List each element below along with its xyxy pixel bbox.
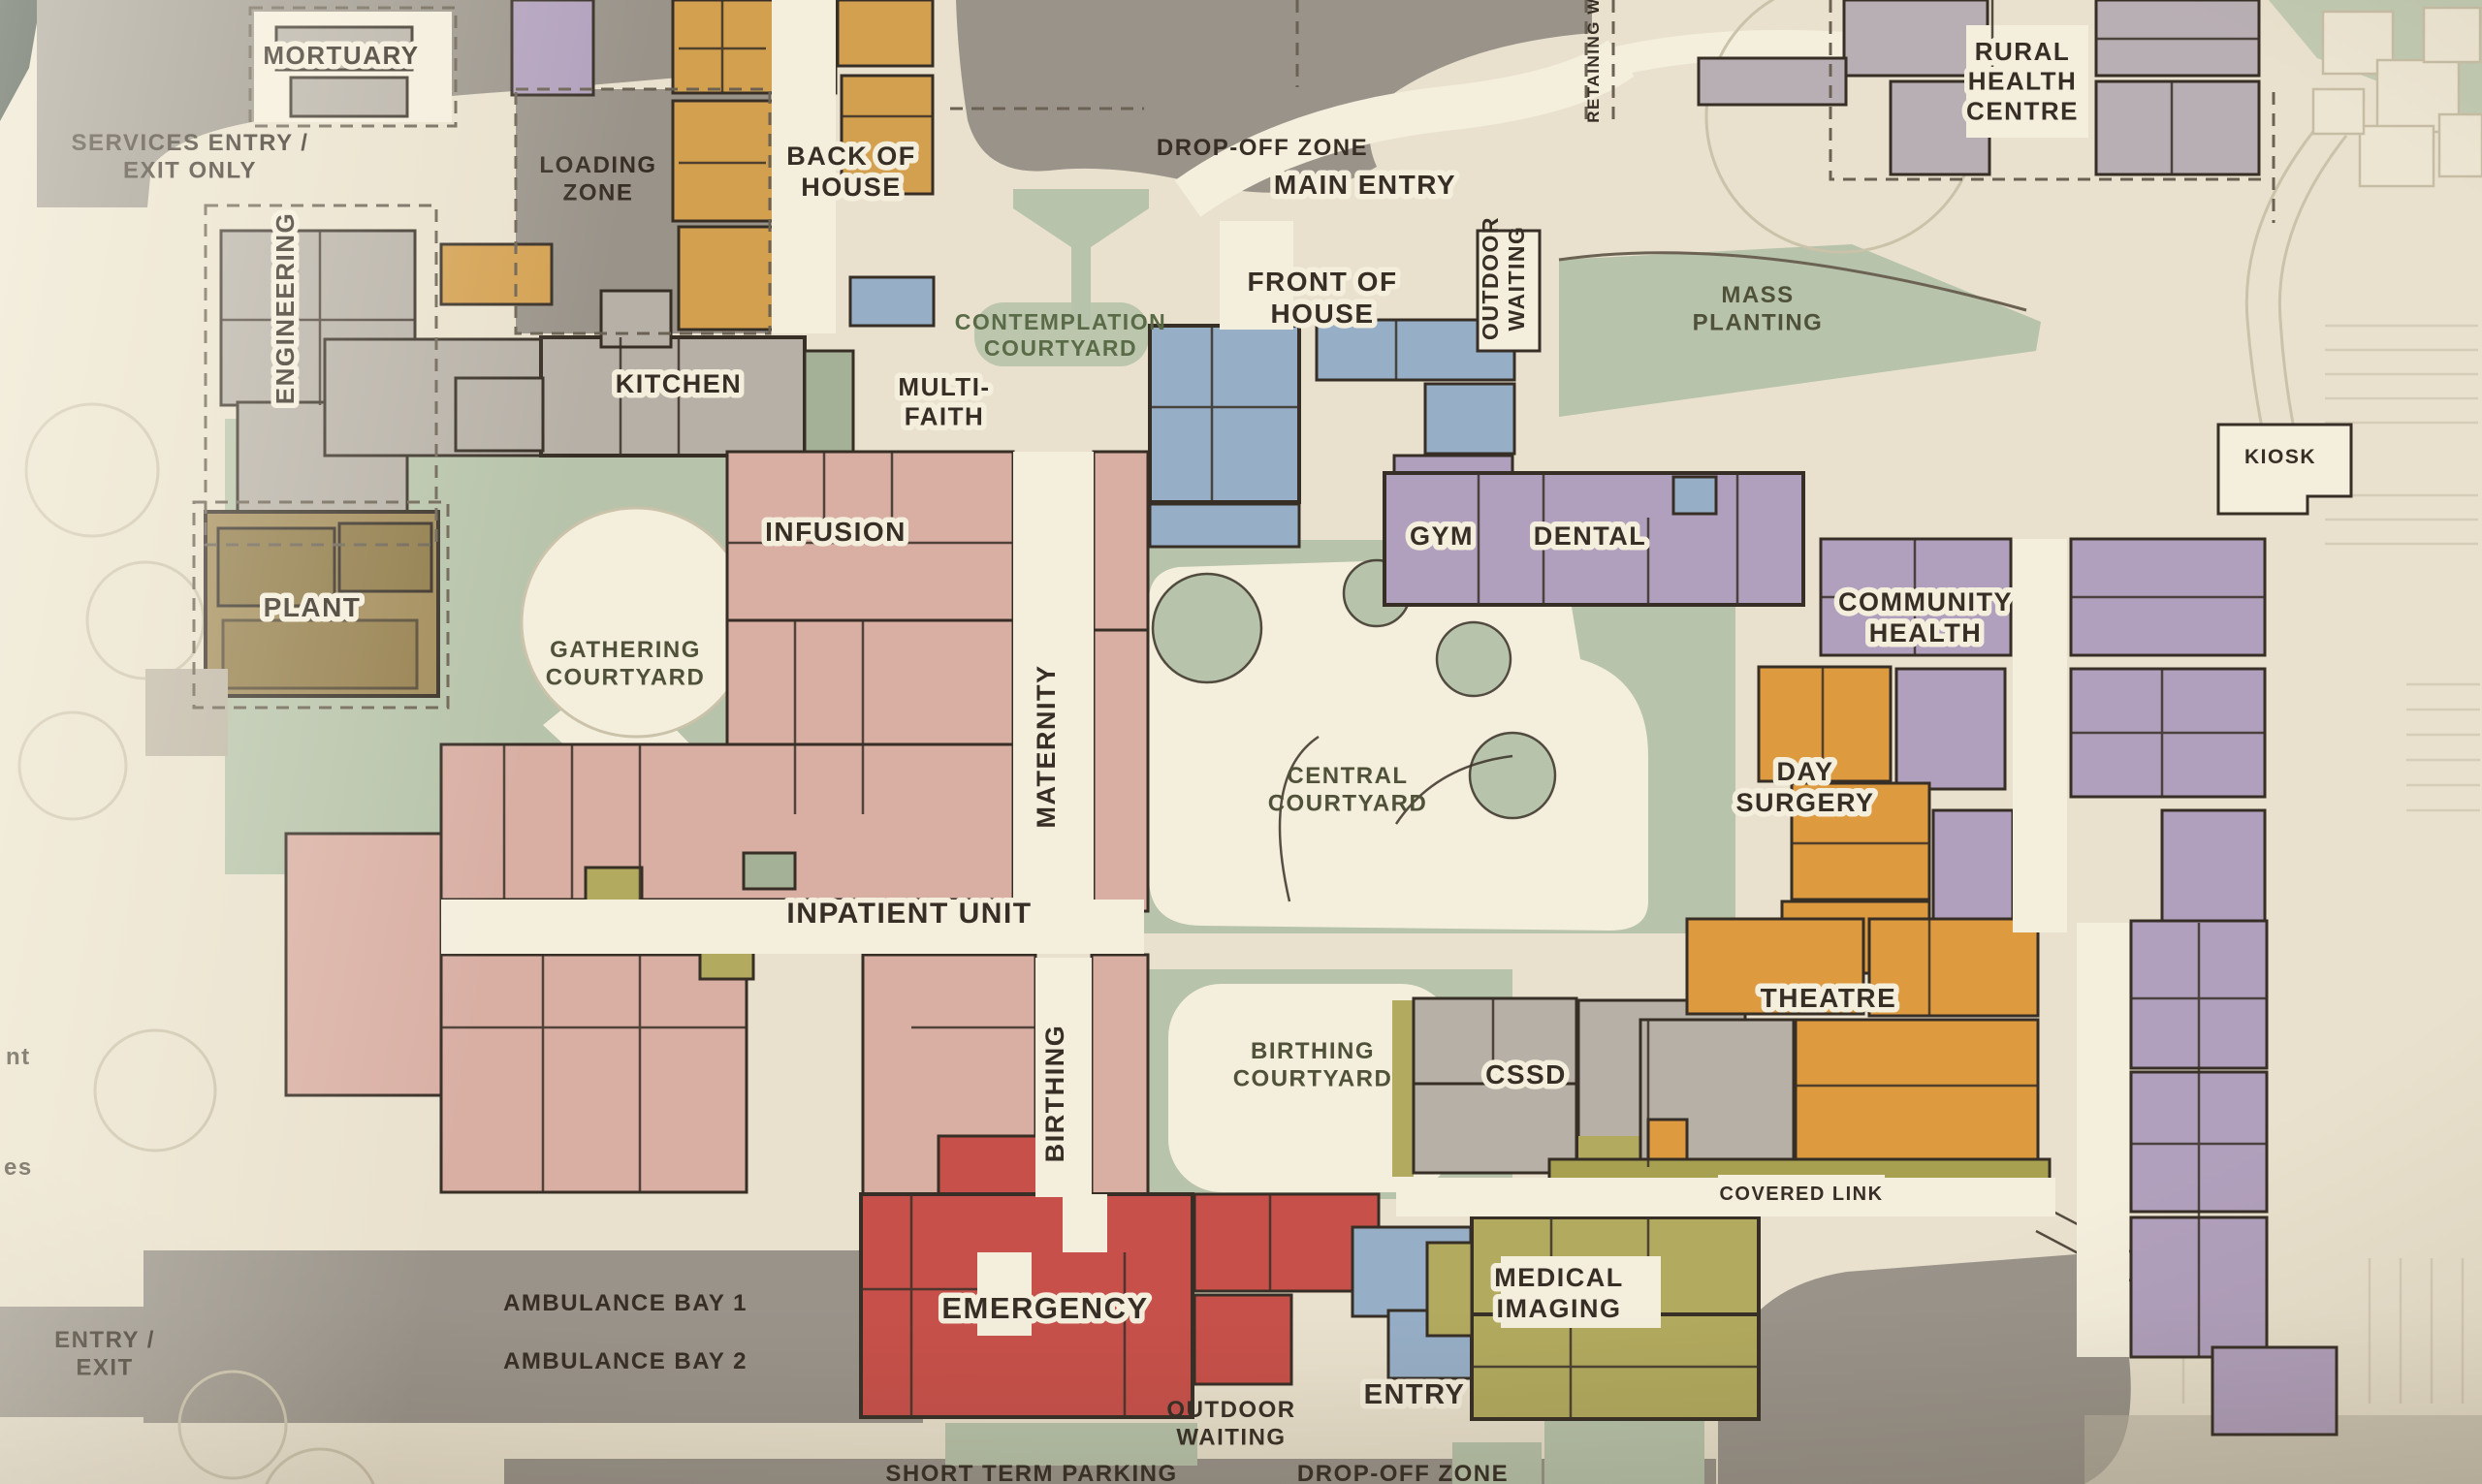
room (1150, 504, 1299, 547)
room (1194, 1295, 1291, 1384)
label-retaining-wall: RETAINING W (1584, 0, 1603, 123)
room (1796, 1020, 2038, 1175)
label-emergency: EMERGENCY (941, 1291, 1148, 1325)
room (512, 0, 593, 95)
room (1673, 477, 1716, 514)
corridor (2013, 539, 2067, 932)
label-outdoor-waiting-top: OUTDOORWAITING (1478, 216, 1529, 340)
label-gym: GYM (1410, 521, 1474, 551)
room (1094, 630, 1148, 911)
label-back-of-house: BACK OFHOUSE (786, 142, 916, 202)
room (1896, 669, 2005, 789)
room (601, 291, 671, 347)
room (744, 853, 795, 889)
label-maternity: MATERNITY (1032, 665, 1061, 829)
hedge-short-term (945, 1423, 1197, 1466)
corridor (2077, 923, 2129, 1357)
room (223, 620, 417, 688)
room (1844, 0, 1988, 76)
label-drop-off-zone-top: DROP-OFF ZONE (1157, 135, 1368, 161)
label-edge-text-nt: nt (6, 1044, 31, 1070)
label-dental: DENTAL (1534, 521, 1647, 551)
label-rural-health-centre: RURALHEALTHCENTRE (1966, 37, 2079, 125)
label-birthing: BIRTHING (1040, 1025, 1069, 1163)
label-short-term-parking: SHORT TERM PARKING (885, 1461, 1177, 1484)
room (441, 744, 1013, 900)
label-edge-text-es: es (4, 1154, 33, 1181)
label-main-entry: MAIN ENTRY (1274, 170, 1456, 200)
label-birthing-courtyard: BIRTHINGCOURTYARD (1233, 1038, 1393, 1091)
ambulance-bay-road (143, 1250, 923, 1423)
label-outdoor-waiting-bottom: OUTDOORWAITING (1166, 1397, 1295, 1450)
room (850, 277, 934, 326)
label-multi-faith: MULTI-FAITH (898, 372, 990, 431)
room (1392, 1000, 1414, 1177)
label-infusion: INFUSION (765, 517, 907, 547)
room (1094, 452, 1148, 630)
label-engineering: ENGINEERING (270, 212, 300, 405)
label-contemplation-courtyard: CONTEMPLATIONCOURTYARD (955, 309, 1166, 361)
label-gathering-courtyard: GATHERINGCOURTYARD (546, 637, 706, 690)
gap (1063, 1194, 1107, 1252)
label-cssd: CSSD (1485, 1059, 1567, 1089)
room (1092, 955, 1148, 1197)
room (838, 0, 933, 66)
label-plant: PLANT (264, 592, 362, 622)
room (441, 955, 747, 1192)
room (1427, 1243, 1472, 1336)
room (1425, 384, 1514, 454)
label-ambulance-bay-2: AMBULANCE BAY 2 (503, 1348, 748, 1374)
label-covered-link: COVERED LINK (1719, 1184, 1883, 1205)
label-kitchen: KITCHEN (616, 369, 743, 398)
label-inpatient-unit: INPATIENT UNIT (786, 898, 1032, 930)
floor-plan-photo: MORTUARYSERVICES ENTRY /EXIT ONLYLOADING… (0, 0, 2482, 1484)
label-mortuary: MORTUARY (263, 41, 419, 70)
room (456, 378, 543, 451)
label-medical-imaging: MEDICALIMAGING (1494, 1263, 1624, 1323)
room (1150, 326, 1299, 502)
room (339, 523, 431, 591)
room (1933, 810, 2013, 931)
room (441, 244, 552, 304)
label-theatre: THEATRE (1761, 983, 1897, 1013)
label-ambulance-bay-1: AMBULANCE BAY 1 (503, 1290, 748, 1316)
room (1699, 58, 1846, 105)
multi-faith-room (805, 351, 853, 459)
room (2212, 1347, 2337, 1435)
room (291, 78, 407, 116)
label-central-courtyard: CENTRALCOURTYARD (1268, 763, 1428, 816)
room (2162, 810, 2265, 932)
hospital-site-plan: MORTUARYSERVICES ENTRY /EXIT ONLYLOADING… (0, 0, 2482, 1484)
room (286, 834, 441, 1095)
label-kiosk: KIOSK (2244, 446, 2316, 468)
label-drop-off-zone-bottom: DROP-OFF ZONE (1297, 1461, 1509, 1484)
west-gray-block (145, 669, 228, 756)
label-entry-bottom: ENTRY (1364, 1379, 1466, 1410)
room (2096, 81, 2259, 174)
